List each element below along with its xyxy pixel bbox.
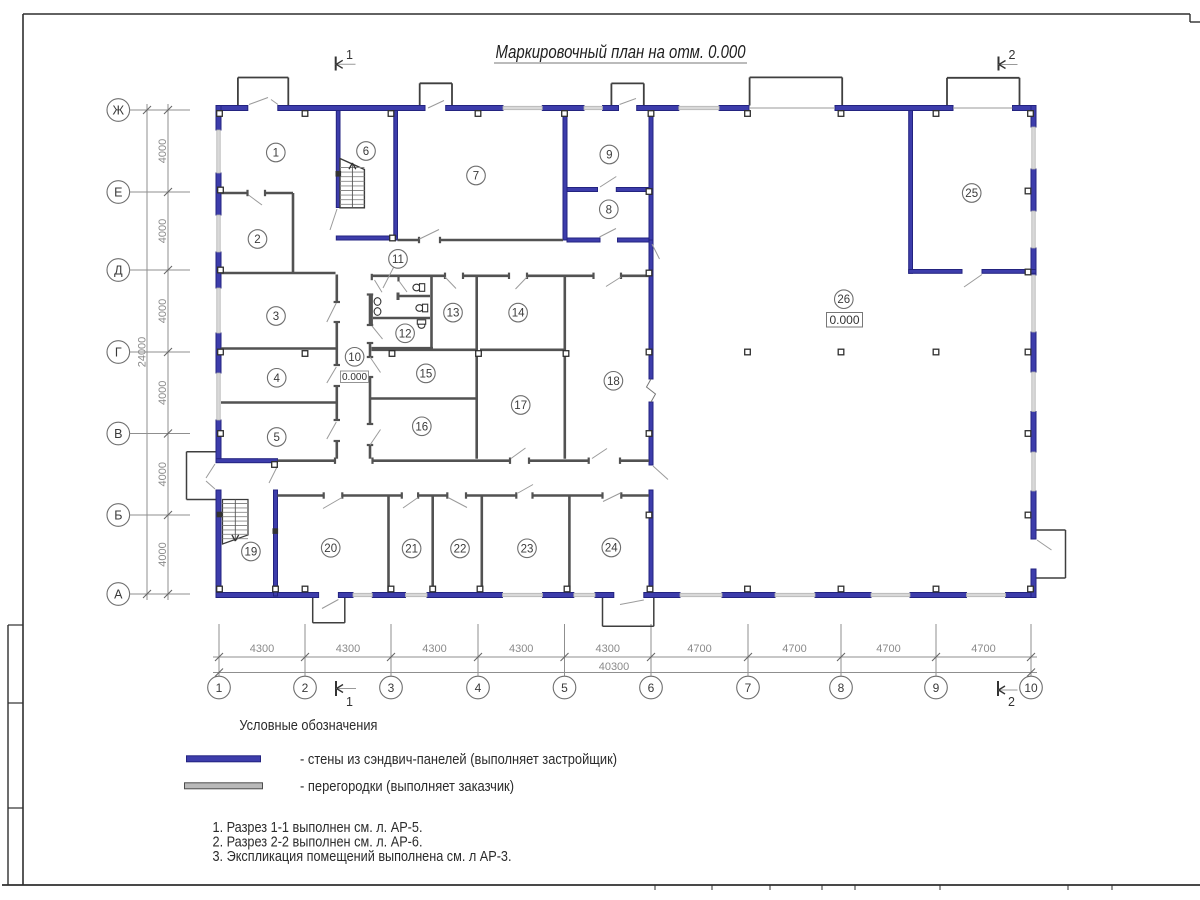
svg-text:12: 12 (399, 328, 412, 340)
svg-text:0.000: 0.000 (829, 313, 859, 327)
svg-text:4000: 4000 (157, 542, 169, 566)
svg-text:24: 24 (605, 543, 618, 555)
svg-text:24000: 24000 (137, 337, 149, 368)
svg-text:17: 17 (514, 400, 527, 412)
svg-text:22: 22 (454, 544, 467, 556)
svg-text:25: 25 (965, 188, 978, 200)
svg-text:3. Экспликация помещений выпол: 3. Экспликация помещений выполнена см. л… (213, 849, 512, 865)
svg-text:26: 26 (837, 294, 850, 306)
svg-text:4000: 4000 (157, 299, 169, 323)
svg-text:9: 9 (933, 681, 940, 695)
svg-text:19: 19 (245, 547, 258, 559)
svg-text:4000: 4000 (157, 219, 169, 243)
svg-text:0.000: 0.000 (342, 372, 367, 383)
svg-text:- перегородки (выполняет заказ: - перегородки (выполняет заказчик) (300, 779, 514, 795)
svg-text:13: 13 (447, 308, 460, 320)
svg-text:2: 2 (254, 234, 260, 246)
svg-text:1: 1 (273, 148, 279, 160)
svg-text:В: В (114, 427, 122, 441)
svg-text:2: 2 (1009, 48, 1016, 62)
svg-text:10: 10 (1024, 681, 1038, 695)
svg-text:7: 7 (473, 171, 479, 183)
svg-text:4700: 4700 (876, 643, 900, 655)
svg-text:9: 9 (606, 150, 612, 162)
svg-text:21: 21 (405, 544, 418, 556)
svg-text:5: 5 (561, 681, 568, 695)
svg-text:3: 3 (273, 311, 279, 323)
svg-text:10: 10 (348, 352, 361, 364)
svg-text:3: 3 (388, 681, 395, 695)
svg-text:18: 18 (607, 376, 620, 388)
svg-text:Условные обозначения: Условные обозначения (239, 718, 377, 734)
svg-text:20: 20 (324, 543, 337, 555)
svg-text:15: 15 (420, 368, 433, 380)
svg-text:4700: 4700 (971, 643, 995, 655)
svg-text:4700: 4700 (782, 643, 806, 655)
svg-text:- стены из сэндвич-панелей (вы: - стены из сэндвич-панелей (выполняет за… (300, 752, 617, 768)
svg-text:Д: Д (114, 263, 123, 277)
svg-text:8: 8 (606, 204, 612, 216)
svg-text:4300: 4300 (509, 643, 533, 655)
svg-text:4000: 4000 (157, 462, 169, 486)
svg-text:Ж: Ж (113, 103, 125, 117)
svg-text:А: А (114, 587, 123, 601)
svg-text:4000: 4000 (157, 381, 169, 405)
svg-text:4: 4 (273, 373, 280, 385)
svg-text:Маркировочный план на отм. 0.0: Маркировочный план на отм. 0.000 (496, 42, 746, 62)
svg-text:2: 2 (1008, 695, 1015, 709)
svg-text:1: 1 (216, 681, 223, 695)
svg-text:23: 23 (521, 543, 534, 555)
svg-text:4: 4 (475, 681, 482, 695)
svg-text:4700: 4700 (687, 643, 711, 655)
svg-text:11: 11 (392, 254, 404, 266)
svg-text:7: 7 (745, 681, 752, 695)
svg-text:6: 6 (363, 146, 369, 158)
svg-text:40300: 40300 (599, 661, 630, 673)
svg-text:6: 6 (648, 681, 655, 695)
svg-text:4000: 4000 (157, 139, 169, 163)
svg-text:16: 16 (415, 421, 428, 433)
svg-text:Е: Е (114, 185, 122, 199)
svg-text:4300: 4300 (250, 643, 274, 655)
svg-text:5: 5 (273, 432, 279, 444)
svg-text:2: 2 (302, 681, 309, 695)
svg-text:1: 1 (346, 48, 353, 62)
svg-text:8: 8 (838, 681, 845, 695)
svg-text:Б: Б (114, 508, 122, 522)
svg-text:4300: 4300 (422, 643, 446, 655)
svg-text:1: 1 (346, 695, 353, 709)
svg-text:Г: Г (115, 345, 122, 359)
svg-text:14: 14 (512, 308, 525, 320)
svg-text:4300: 4300 (596, 643, 620, 655)
svg-text:4300: 4300 (336, 643, 360, 655)
